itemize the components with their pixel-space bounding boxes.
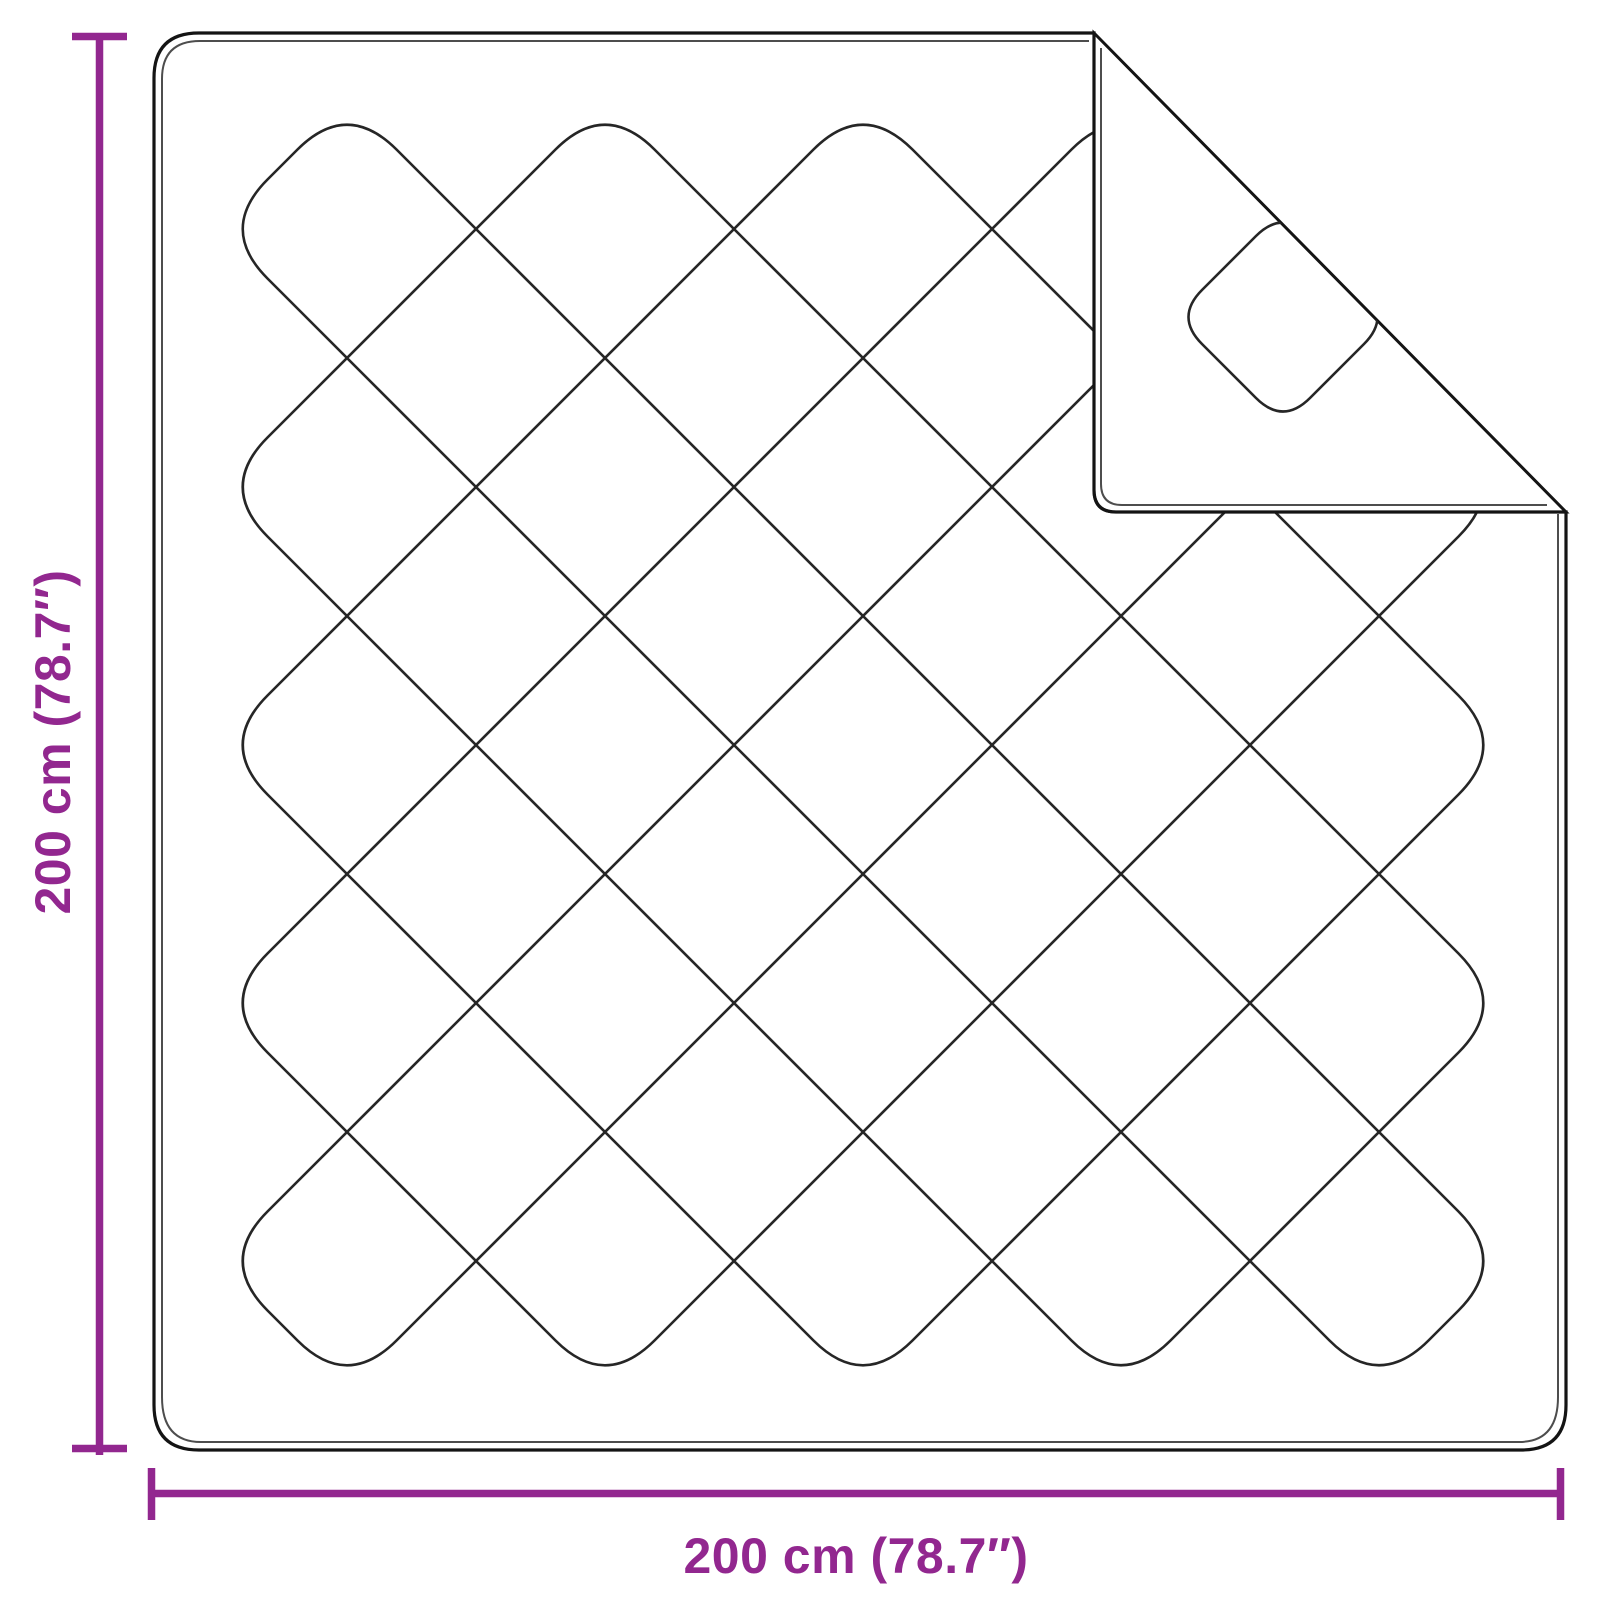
- height-label: 200 cm (78.7″): [25, 569, 81, 914]
- fold-flap-face: [1094, 33, 1566, 512]
- height-dimension: 200 cm (78.7″): [25, 33, 127, 1455]
- blanket-dimension-diagram: 200 cm (78.7″) 200 cm (78.7″): [0, 0, 1600, 1600]
- diagram-canvas: 200 cm (78.7″) 200 cm (78.7″): [0, 0, 1600, 1600]
- width-dimension: 200 cm (78.7″): [148, 1468, 1564, 1584]
- blanket-body: [154, 33, 1566, 1450]
- width-label: 200 cm (78.7″): [683, 1528, 1028, 1584]
- fold-flap: [1094, 33, 1566, 512]
